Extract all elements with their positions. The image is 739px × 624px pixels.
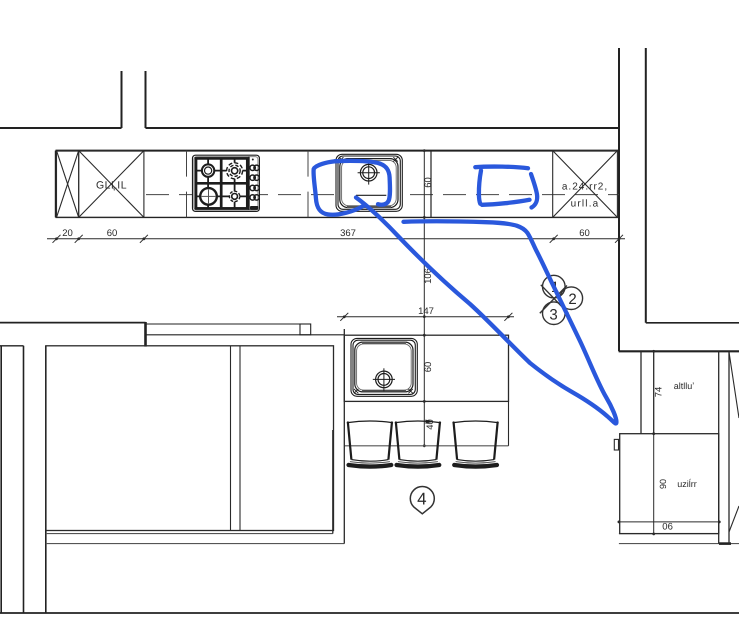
svg-text:60: 60 — [423, 177, 434, 188]
svg-text:60: 60 — [107, 228, 118, 239]
svg-text:altlluʼ: altlluʼ — [674, 381, 695, 391]
svg-text:60: 60 — [423, 362, 434, 373]
svg-text:367: 367 — [340, 228, 356, 239]
svg-text:3: 3 — [549, 307, 557, 324]
svg-text:GLĻIL: GLĻIL — [96, 180, 127, 192]
svg-text:60: 60 — [579, 228, 590, 239]
svg-text:2: 2 — [568, 291, 576, 308]
svg-text:4: 4 — [417, 490, 426, 509]
svg-text:74: 74 — [654, 387, 665, 398]
svg-text:90: 90 — [658, 479, 668, 489]
svg-text:urll.a: urll.a — [571, 199, 600, 210]
svg-text:06: 06 — [662, 522, 673, 533]
svg-text:20: 20 — [62, 228, 73, 239]
svg-text:uziĺrr: uziĺrr — [677, 478, 697, 489]
svg-text:a.24.rr2,: a.24.rr2, — [562, 182, 608, 193]
svg-text:147: 147 — [418, 306, 434, 317]
